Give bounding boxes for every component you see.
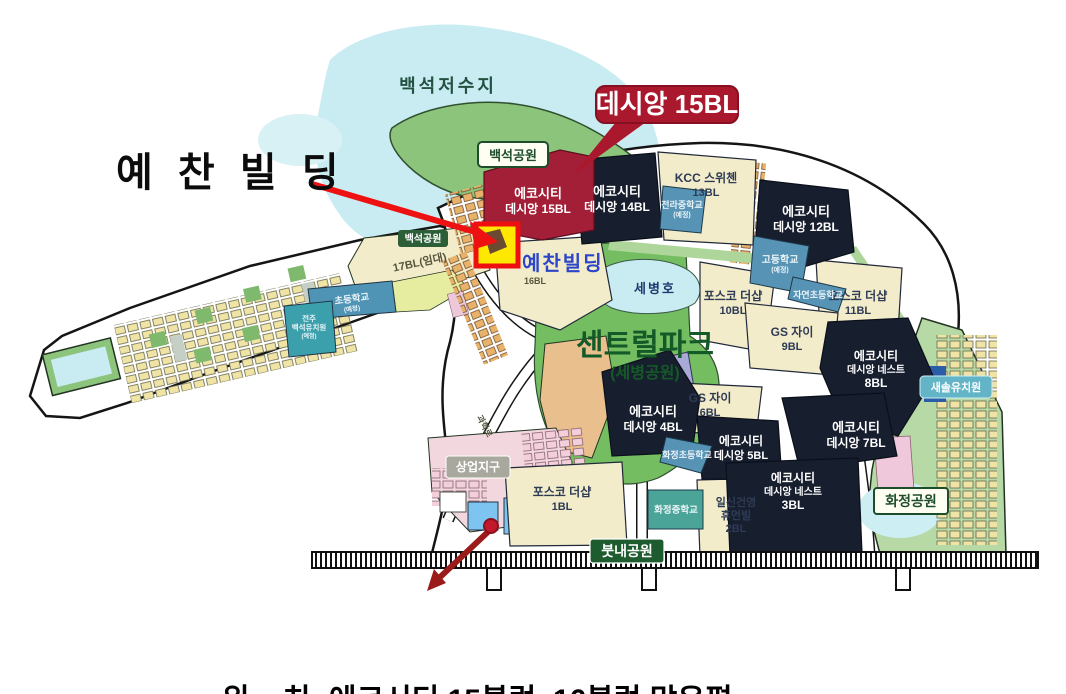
svg-text:데시앙 네스트: 데시앙 네스트: [847, 363, 905, 376]
railway-track: [312, 552, 1038, 568]
svg-text:(예정): (예정): [771, 265, 789, 274]
svg-text:데시앙 4BL: 데시앙 4BL: [623, 420, 682, 434]
svg-text:에코시티: 에코시티: [832, 420, 880, 435]
svg-text:에코시티: 에코시티: [593, 184, 641, 199]
location-map-page: 백석공원 백석공원 붓내공원 화정공원 새솔유치원 상업지구 백석저수지 세병호…: [0, 0, 1066, 694]
svg-text:6BL: 6BL: [700, 407, 721, 419]
svg-text:데시앙 5BL: 데시앙 5BL: [714, 448, 768, 462]
svg-text:13BL: 13BL: [693, 187, 720, 199]
svg-text:포스코 더샵: 포스코 더샵: [533, 484, 592, 499]
svg-text:KCC 스위첸: KCC 스위첸: [675, 170, 737, 185]
railway-pillar: [642, 568, 656, 590]
svg-text:(예정): (예정): [673, 210, 691, 219]
site-block-16bl-label: 16BL: [524, 276, 547, 286]
svg-text:화정초등학교: 화정초등학교: [662, 449, 712, 460]
svg-text:1BL: 1BL: [552, 501, 573, 513]
sebyeong-lake-label: 세병호: [634, 281, 676, 296]
central-park-label: 센트럴파크: [576, 329, 714, 362]
svg-text:휴먼빌: 휴먼빌: [721, 508, 751, 522]
svg-text:데시앙 7BL: 데시앙 7BL: [826, 436, 885, 450]
footer-info: 위 치: 에코시티 15블럭, 16블럭 맞은편 주 소: 전주시 덕진구 송천…: [222, 606, 812, 694]
central-park-sublabel: (세병공원): [610, 364, 680, 382]
svg-text:3BL: 3BL: [782, 498, 805, 512]
location-label: 위 치:: [222, 684, 321, 694]
svg-text:9BL: 9BL: [782, 341, 803, 353]
svg-text:11BL: 11BL: [845, 305, 872, 317]
svg-text:고등학교: 고등학교: [762, 253, 799, 266]
svg-text:데시앙 14BL: 데시앙 14BL: [584, 200, 650, 214]
svg-text:에코시티: 에코시티: [782, 204, 830, 219]
commercial-district-badge-label: 상업지구: [456, 459, 500, 474]
building-title: 예 찬 빌 딩: [116, 140, 346, 198]
callout-badge-label: 데시앙 15BL: [596, 89, 739, 119]
svg-text:백석유치원: 백석유치원: [292, 322, 327, 332]
svg-text:에코시티: 에코시티: [514, 186, 562, 201]
yechan-building-map-label: 예찬빌딩: [522, 252, 604, 275]
west-strip-detail: [42, 226, 490, 403]
svg-text:데시앙 15BL: 데시앙 15BL: [505, 202, 571, 216]
hwajeong-park-badge-label: 화정공원: [885, 493, 937, 509]
svg-text:에코시티: 에코시티: [771, 470, 815, 485]
reservoir-label: 백석저수지: [399, 76, 497, 96]
svg-text:전주: 전주: [302, 313, 316, 323]
svg-text:포스코 더샵: 포스코 더샵: [704, 288, 763, 303]
svg-text:GS 자이: GS 자이: [689, 390, 732, 405]
svg-text:일신건영: 일신건영: [716, 495, 756, 509]
svg-text:에코시티: 에코시티: [629, 404, 677, 419]
baekseok-park-strip-badge-label: 백석공원: [405, 232, 442, 245]
svg-text:데시앙 네스트: 데시앙 네스트: [764, 485, 822, 498]
bottom-red-dot: [484, 519, 498, 533]
location-row: 위 치: 에코시티 15블럭, 16블럭 맞은편: [222, 682, 812, 694]
svg-text:자연초등학교: 자연초등학교: [793, 289, 843, 300]
svg-text:GS 자이: GS 자이: [771, 324, 814, 339]
railway-pillar: [896, 568, 910, 590]
svg-text:2BL: 2BL: [726, 523, 747, 535]
svg-text:8BL: 8BL: [865, 376, 888, 390]
butnae-park-badge-label: 붓내공원: [601, 543, 653, 559]
svg-text:에코시티: 에코시티: [719, 433, 763, 448]
svg-text:10BL: 10BL: [720, 305, 747, 317]
baekseok-park-badge-label: 백석공원: [489, 148, 537, 163]
svg-text:전라중학교: 전라중학교: [661, 199, 702, 210]
svg-text:(예정): (예정): [301, 332, 316, 340]
eco-city-map: 백석공원 백석공원 붓내공원 화정공원 새솔유치원 상업지구 백석저수지 세병호…: [0, 0, 1066, 600]
railway-pillar: [487, 568, 501, 590]
svg-text:화정중학교: 화정중학교: [654, 504, 698, 516]
location-value: 에코시티 15블럭, 16블럭 맞은편: [321, 684, 733, 694]
svg-text:데시앙 12BL: 데시앙 12BL: [773, 220, 839, 234]
saesol-kindergarten-badge-label: 새솔유치원: [931, 380, 982, 394]
svg-text:에코시티: 에코시티: [854, 348, 898, 363]
